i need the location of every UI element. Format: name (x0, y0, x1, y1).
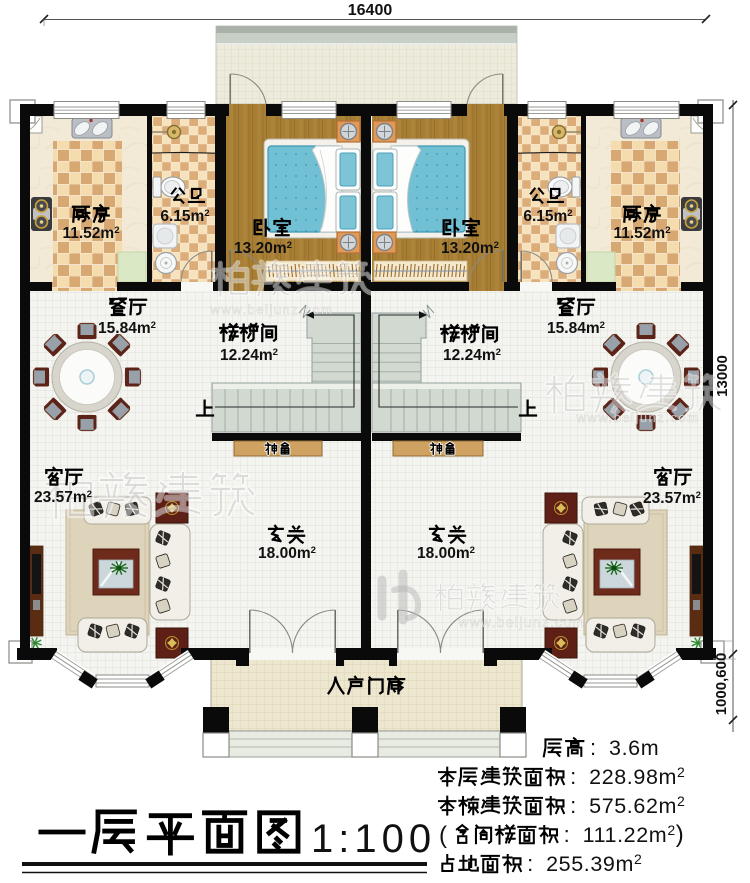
svg-text:www.beijunz.com: www.beijunz.com (210, 302, 334, 317)
svg-text:12.24m2: 12.24m2 (220, 347, 278, 364)
svg-text::: : (570, 764, 576, 789)
svg-text::: : (570, 793, 576, 818)
svg-text::: : (590, 735, 596, 760)
svg-text:255.39m2: 255.39m2 (546, 851, 642, 876)
svg-text:13.20m2: 13.20m2 (234, 240, 292, 257)
svg-text:575.62m2: 575.62m2 (589, 793, 685, 818)
svg-text:(: ( (439, 822, 447, 849)
svg-text:13.20m2: 13.20m2 (441, 240, 499, 257)
svg-text:228.98m2: 228.98m2 (589, 764, 685, 789)
svg-text:13000: 13000 (714, 355, 731, 397)
svg-text:23.57m2: 23.57m2 (643, 490, 701, 507)
svg-text:11.52m2: 11.52m2 (613, 225, 670, 242)
svg-text:12.24m2: 12.24m2 (443, 347, 501, 364)
svg-text:18.00m2: 18.00m2 (417, 545, 475, 562)
svg-text:1000,600: 1000,600 (713, 653, 730, 716)
svg-text:www.beijunz.com: www.beijunz.com (458, 615, 586, 630)
svg-text::: : (527, 851, 533, 876)
svg-text:www.beijunz.com: www.beijunz.com (576, 410, 700, 425)
svg-text:3.6m: 3.6m (609, 736, 659, 760)
svg-text:1:100: 1:100 (311, 817, 436, 861)
svg-text:15.84m2: 15.84m2 (98, 320, 156, 337)
svg-text:23.57m2: 23.57m2 (34, 489, 92, 506)
svg-text:6.15m2: 6.15m2 (160, 208, 209, 225)
svg-text:16400: 16400 (348, 2, 393, 19)
svg-text::: : (564, 822, 570, 847)
svg-text:11.52m2: 11.52m2 (62, 225, 119, 242)
svg-text:18.00m2: 18.00m2 (258, 545, 316, 562)
svg-text:15.84m2: 15.84m2 (547, 320, 605, 337)
svg-text:6.15m2: 6.15m2 (523, 208, 572, 225)
